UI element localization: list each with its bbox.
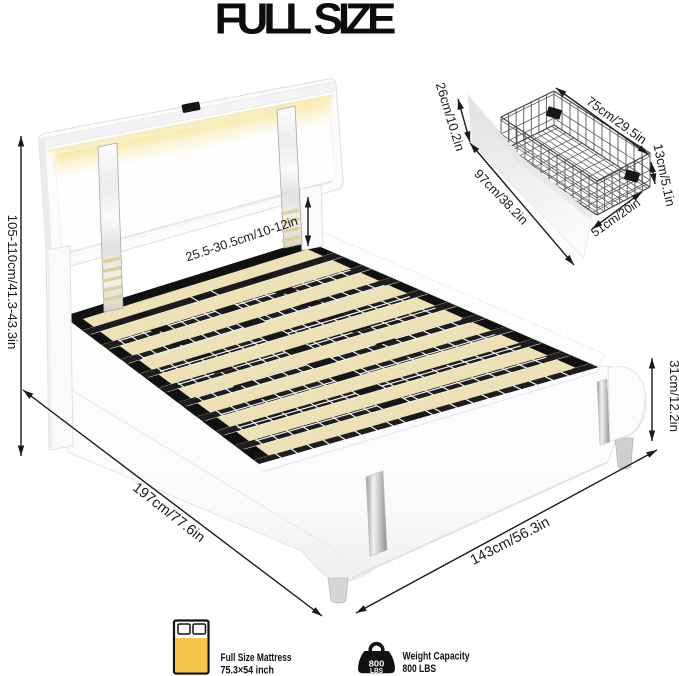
svg-text:Full Size Mattress: Full Size Mattress [221, 652, 292, 664]
svg-text:105-110cm/41.3-43.3in: 105-110cm/41.3-43.3in [5, 215, 20, 350]
svg-text:FULL SIZE: FULL SIZE [215, 0, 395, 44]
svg-text:800: 800 [369, 659, 385, 669]
svg-text:143cm/56.3in: 143cm/56.3in [468, 514, 553, 568]
svg-text:LBS: LBS [370, 668, 383, 675]
svg-text:75cm/29.5in: 75cm/29.5in [584, 93, 650, 147]
svg-text:Weight Capacity: Weight Capacity [403, 651, 470, 663]
svg-text:800 LBS: 800 LBS [403, 663, 437, 675]
svg-text:31cm/12.2in: 31cm/12.2in [667, 360, 679, 432]
svg-text:75.3×54 inch: 75.3×54 inch [221, 664, 275, 676]
